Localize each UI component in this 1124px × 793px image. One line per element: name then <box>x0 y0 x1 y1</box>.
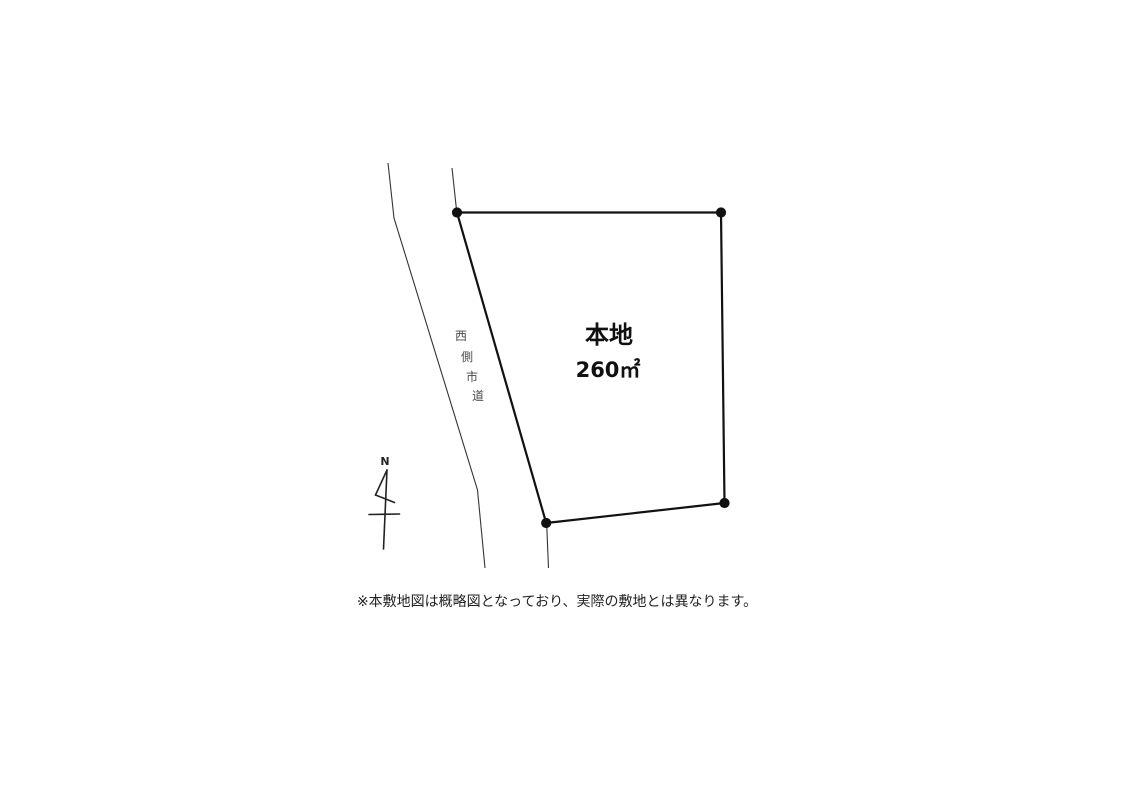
road-label-char-1: 西 <box>455 329 467 343</box>
road-label-char-2: 側 <box>461 350 473 364</box>
north-arrow-crossbar <box>369 514 400 515</box>
plot-label: 本地 <box>585 321 633 349</box>
road-left-edge-line <box>388 163 485 568</box>
north-arrow-shaft <box>384 470 388 549</box>
road-label-char-4: 道 <box>472 389 484 403</box>
road-label-char-3: 市 <box>466 369 478 384</box>
north-arrow-label: N <box>380 455 389 468</box>
plot-area-label: 260㎡ <box>576 358 641 382</box>
site-plan-page: 本地 260㎡ 西 側 市 道 N ※本敷地図は概略図となっており、実際の敷地と… <box>0 0 1124 793</box>
disclaimer-text: ※本敷地図は概略図となっており、実際の敷地とは異なります。 <box>357 594 757 610</box>
road-label: 西 側 市 道 <box>455 329 484 403</box>
plot-vertex-dot-top-right <box>716 207 726 217</box>
road-right-edge-lower-line <box>547 527 549 568</box>
site-plan-drawing: 本地 260㎡ 西 側 市 道 N ※本敷地図は概略図となっており、実際の敷地と… <box>0 0 1124 793</box>
road-right-edge-upper-line <box>452 168 457 213</box>
north-arrow-icon: N <box>369 455 400 549</box>
plot-vertex-dot-bottom-right <box>719 498 729 508</box>
plot-vertex-dot-top-left <box>452 207 462 217</box>
plot-vertex-dot-bottom-left <box>541 518 551 528</box>
